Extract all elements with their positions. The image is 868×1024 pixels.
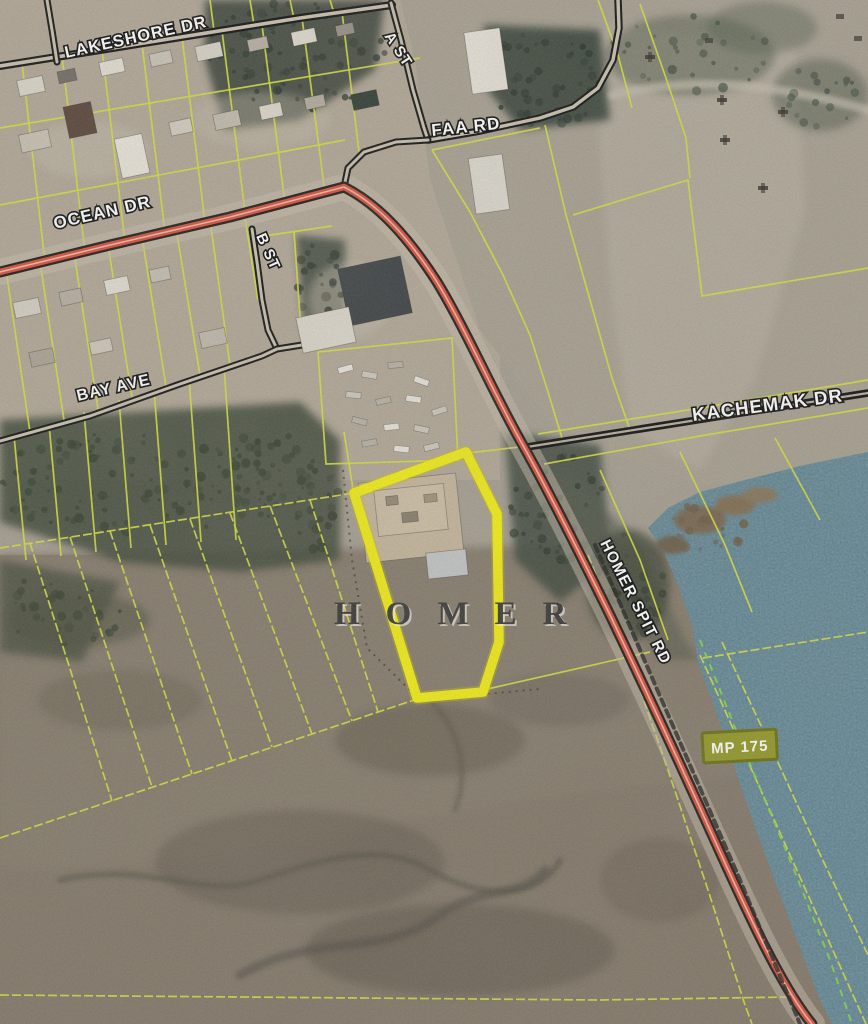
- aerial-parcel-map: LAKESHORE DR A ST FAA RD OCEAN DR B ST B…: [0, 0, 868, 1024]
- place-label-homer: HOMER HOMER: [334, 596, 594, 634]
- map-canvas[interactable]: LAKESHORE DR A ST FAA RD OCEAN DR B ST B…: [0, 0, 868, 1024]
- svg-text:HOMER: HOMER: [334, 596, 592, 632]
- milepost-text: MP 175: [711, 738, 769, 758]
- milepost-marker: MP 175: [702, 729, 777, 763]
